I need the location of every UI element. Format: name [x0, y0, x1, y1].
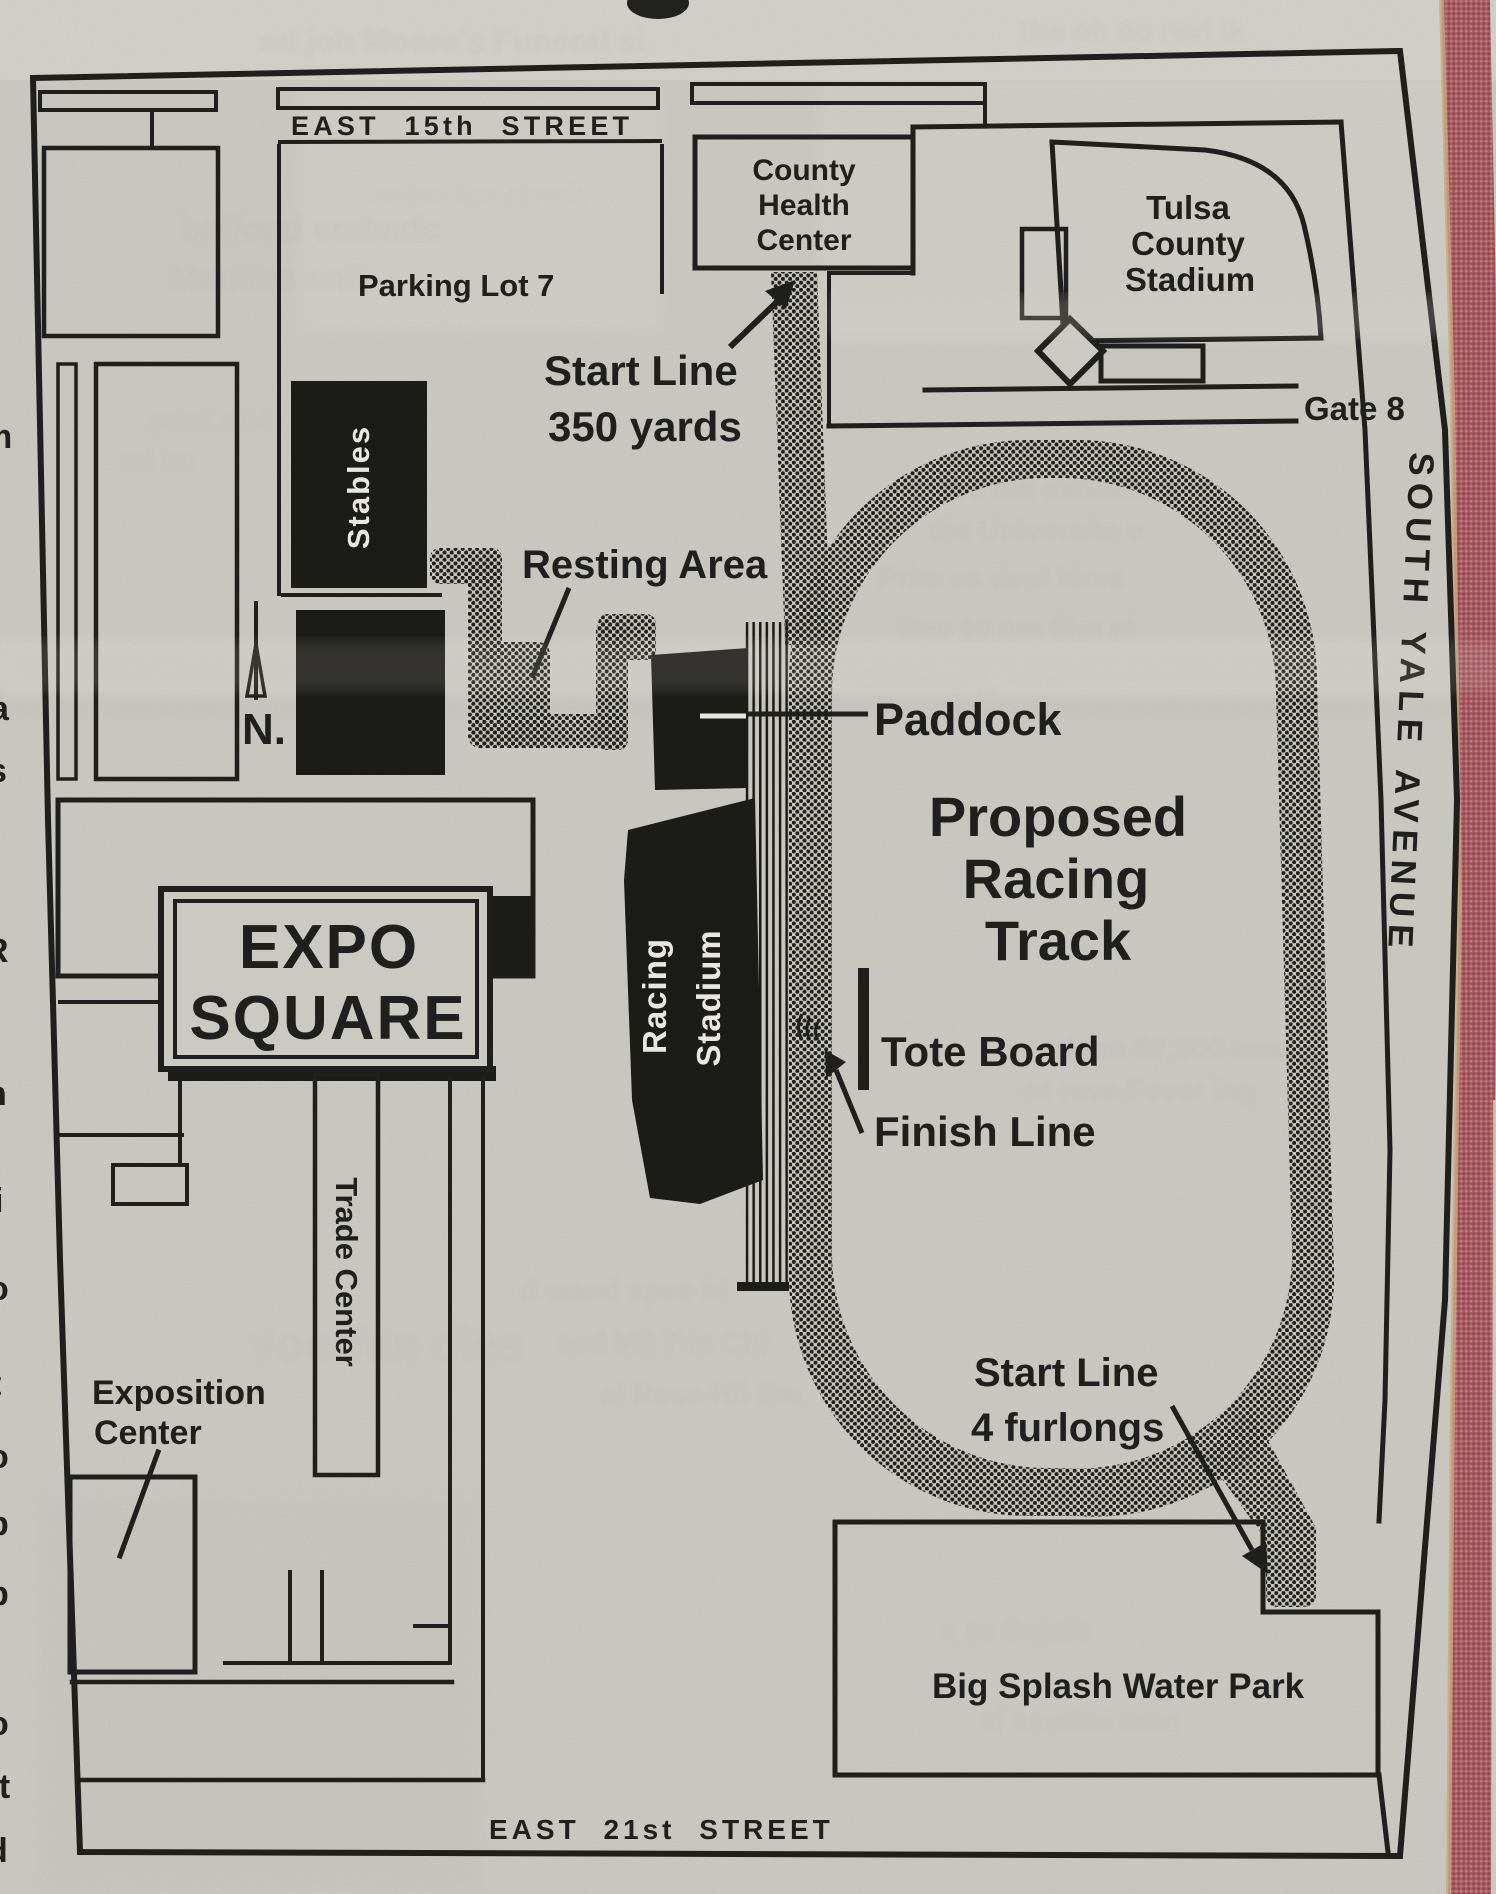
svg-text:Track: Track [985, 909, 1132, 972]
svg-text:sack nide: sack nide [150, 405, 282, 437]
svg-text:Stables: Stables [341, 425, 376, 549]
svg-text:ed bu: ed bu [120, 445, 197, 477]
svg-text:EAST 15th STREET: EAST 15th STREET [291, 111, 633, 141]
svg-text:l: l [0, 1142, 1, 1180]
svg-text:County: County [752, 154, 856, 187]
svg-text:de ba fhu d neit: de ba fhu d neit [370, 180, 585, 212]
svg-text:a: a [0, 690, 10, 728]
svg-text:Manline snil: Manline snil [170, 260, 365, 298]
svg-text:sed Mil Tim Chi: sed Mil Tim Chi [556, 1327, 768, 1359]
svg-text:et: et [0, 1768, 10, 1806]
svg-text:Parking Lot 7: Parking Lot 7 [358, 268, 554, 303]
svg-text:EAST 21st STREET: EAST 21st STREET [489, 1814, 834, 1845]
svg-text:Tulsa: Tulsa [1146, 189, 1230, 226]
svg-text:Paddock: Paddock [874, 694, 1063, 745]
svg-text:Start Line: Start Line [544, 347, 738, 394]
svg-text:m: m [0, 418, 12, 456]
svg-text:Big Splash Water Park: Big Splash Water Park [932, 1667, 1305, 1706]
svg-text:the Universite e: the Universite e [928, 515, 1144, 547]
svg-text:County: County [1131, 225, 1245, 262]
svg-text:al service man: al service man [980, 1705, 1180, 1737]
svg-text:4 furlongs: 4 furlongs [971, 1406, 1164, 1450]
svg-text:nt rave Fever ing: nt rave Fever ing [1024, 1075, 1256, 1107]
svg-text:Exposition: Exposition [92, 1374, 266, 1412]
svg-text:Tote Board: Tote Board [881, 1028, 1100, 1075]
svg-text:p: p [0, 1505, 9, 1543]
svg-text:Center: Center [756, 224, 851, 257]
svg-text:Start Line: Start Line [974, 1351, 1158, 1395]
svg-text:Health: Health [758, 189, 850, 222]
svg-text:Prim es decl hims: Prim es decl hims [878, 563, 1125, 595]
svg-text:Proposed: Proposed [929, 785, 1187, 848]
svg-text:Racing: Racing [636, 938, 673, 1054]
svg-text:Center: Center [94, 1414, 202, 1452]
svg-text:Stadium: Stadium [1125, 261, 1255, 298]
svg-text:ed job Moore's Funeral si: ed job Moore's Funeral si [260, 23, 645, 59]
svg-text:tire oh do revi tk: tire oh do revi tk [1020, 15, 1246, 47]
svg-text:Stadium: Stadium [690, 929, 727, 1066]
svg-text:N.: N. [242, 705, 286, 754]
svg-text:t: t [0, 1365, 1, 1403]
svg-text:n: n [0, 1075, 7, 1113]
svg-text:o: o [0, 1705, 9, 1743]
svg-text:Trade Center: Trade Center [329, 1177, 364, 1367]
svg-text:Resting Area: Resting Area [522, 543, 768, 587]
svg-text:p: p [0, 1575, 9, 1613]
svg-text:d: d [0, 1832, 8, 1870]
svg-text:s: s [0, 752, 7, 790]
svg-text:Gate 8: Gate 8 [1304, 390, 1405, 427]
svg-text:al Rose Hil Em: al Rose Hil Em [600, 1379, 801, 1411]
svg-text:Racing: Racing [963, 847, 1150, 910]
svg-text:Finish Line: Finish Line [874, 1108, 1096, 1155]
svg-text:o: o [0, 1270, 9, 1308]
svg-text:d wand spee hi: d wand spee hi [520, 1275, 728, 1307]
svg-text:n re Benda: n re Benda [940, 1615, 1091, 1647]
svg-text:EXPO: EXPO [239, 913, 419, 982]
svg-text:SQUARE: SQUARE [189, 984, 466, 1053]
svg-text:350 yards: 350 yards [548, 403, 742, 450]
svg-text:Hes 19 am Sim el: Hes 19 am Sim el [898, 613, 1135, 645]
svg-text:i: i [0, 1182, 3, 1220]
svg-text:o: o [0, 1438, 9, 1476]
svg-text:R: R [0, 932, 9, 970]
